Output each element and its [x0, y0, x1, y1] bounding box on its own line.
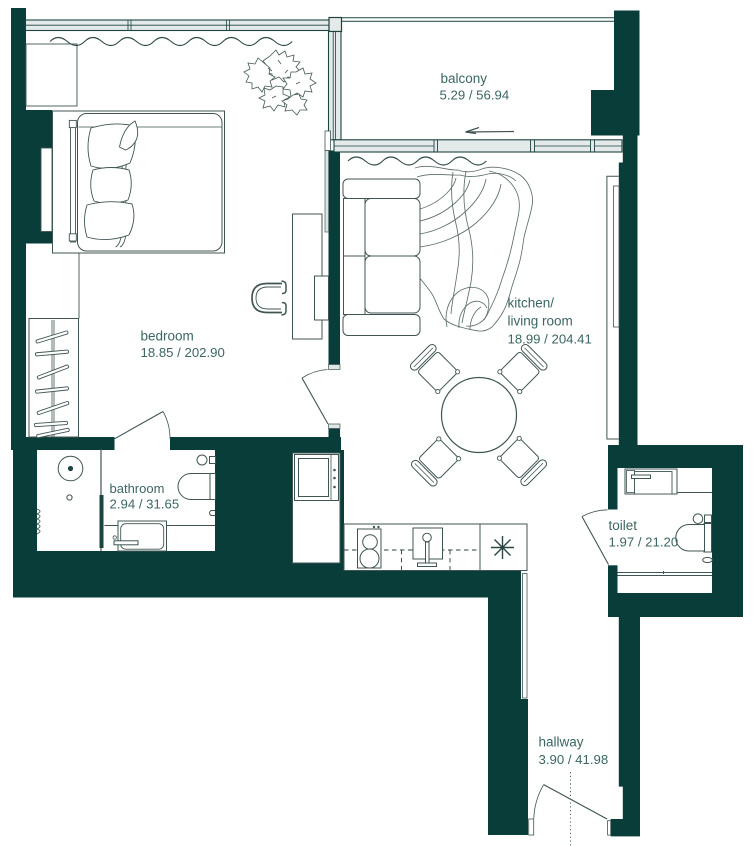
svg-text:toilet: toilet: [609, 518, 638, 533]
svg-text:kitchen/: kitchen/: [508, 296, 555, 311]
svg-text:living room: living room: [508, 314, 573, 329]
svg-text:hallway: hallway: [539, 735, 584, 750]
svg-text:18.85 / 202.90: 18.85 / 202.90: [141, 345, 225, 360]
svg-text:bedroom: bedroom: [141, 329, 194, 344]
svg-text:18.99 / 204.41: 18.99 / 204.41: [508, 332, 592, 347]
svg-text:5.29 / 56.94: 5.29 / 56.94: [440, 88, 510, 103]
svg-text:3.90 / 41.98: 3.90 / 41.98: [539, 752, 609, 767]
svg-text:2.94 / 31.65: 2.94 / 31.65: [110, 497, 180, 512]
svg-text:balcony: balcony: [441, 71, 488, 86]
svg-text:1.97 / 21.20: 1.97 / 21.20: [609, 535, 679, 550]
svg-text:bathroom: bathroom: [110, 481, 165, 496]
